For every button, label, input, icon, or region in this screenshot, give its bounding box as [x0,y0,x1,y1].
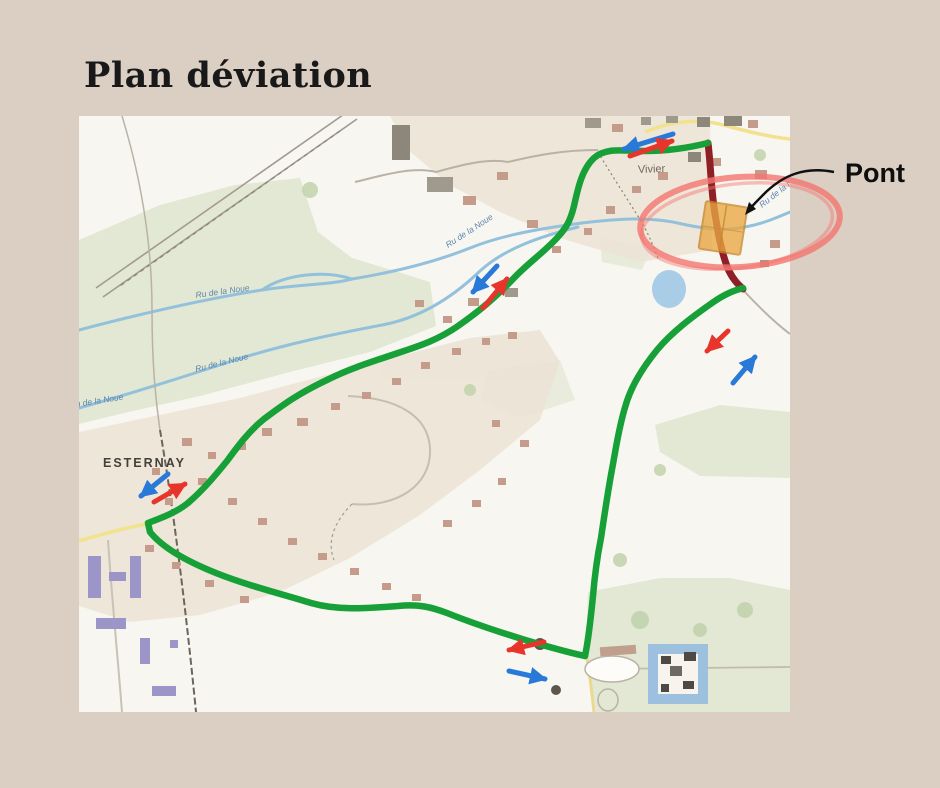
deviation-map-figure: Vivier ESTERNAY Ru de la Noue Ru de la N… [0,0,940,788]
village-label: Vivier [638,163,666,176]
basemap: Vivier ESTERNAY Ru de la Noue Ru de la N… [69,110,807,712]
town-label: ESTERNAY [103,456,186,470]
pond [652,270,686,308]
bridge-marker [699,201,748,255]
pont-label: Pont [845,158,905,188]
